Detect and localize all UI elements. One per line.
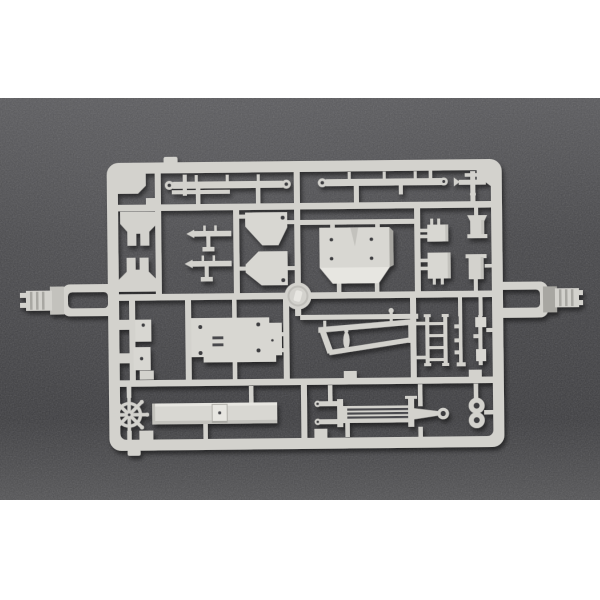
product-photo	[0, 0, 600, 600]
photo-canvas	[0, 0, 600, 600]
